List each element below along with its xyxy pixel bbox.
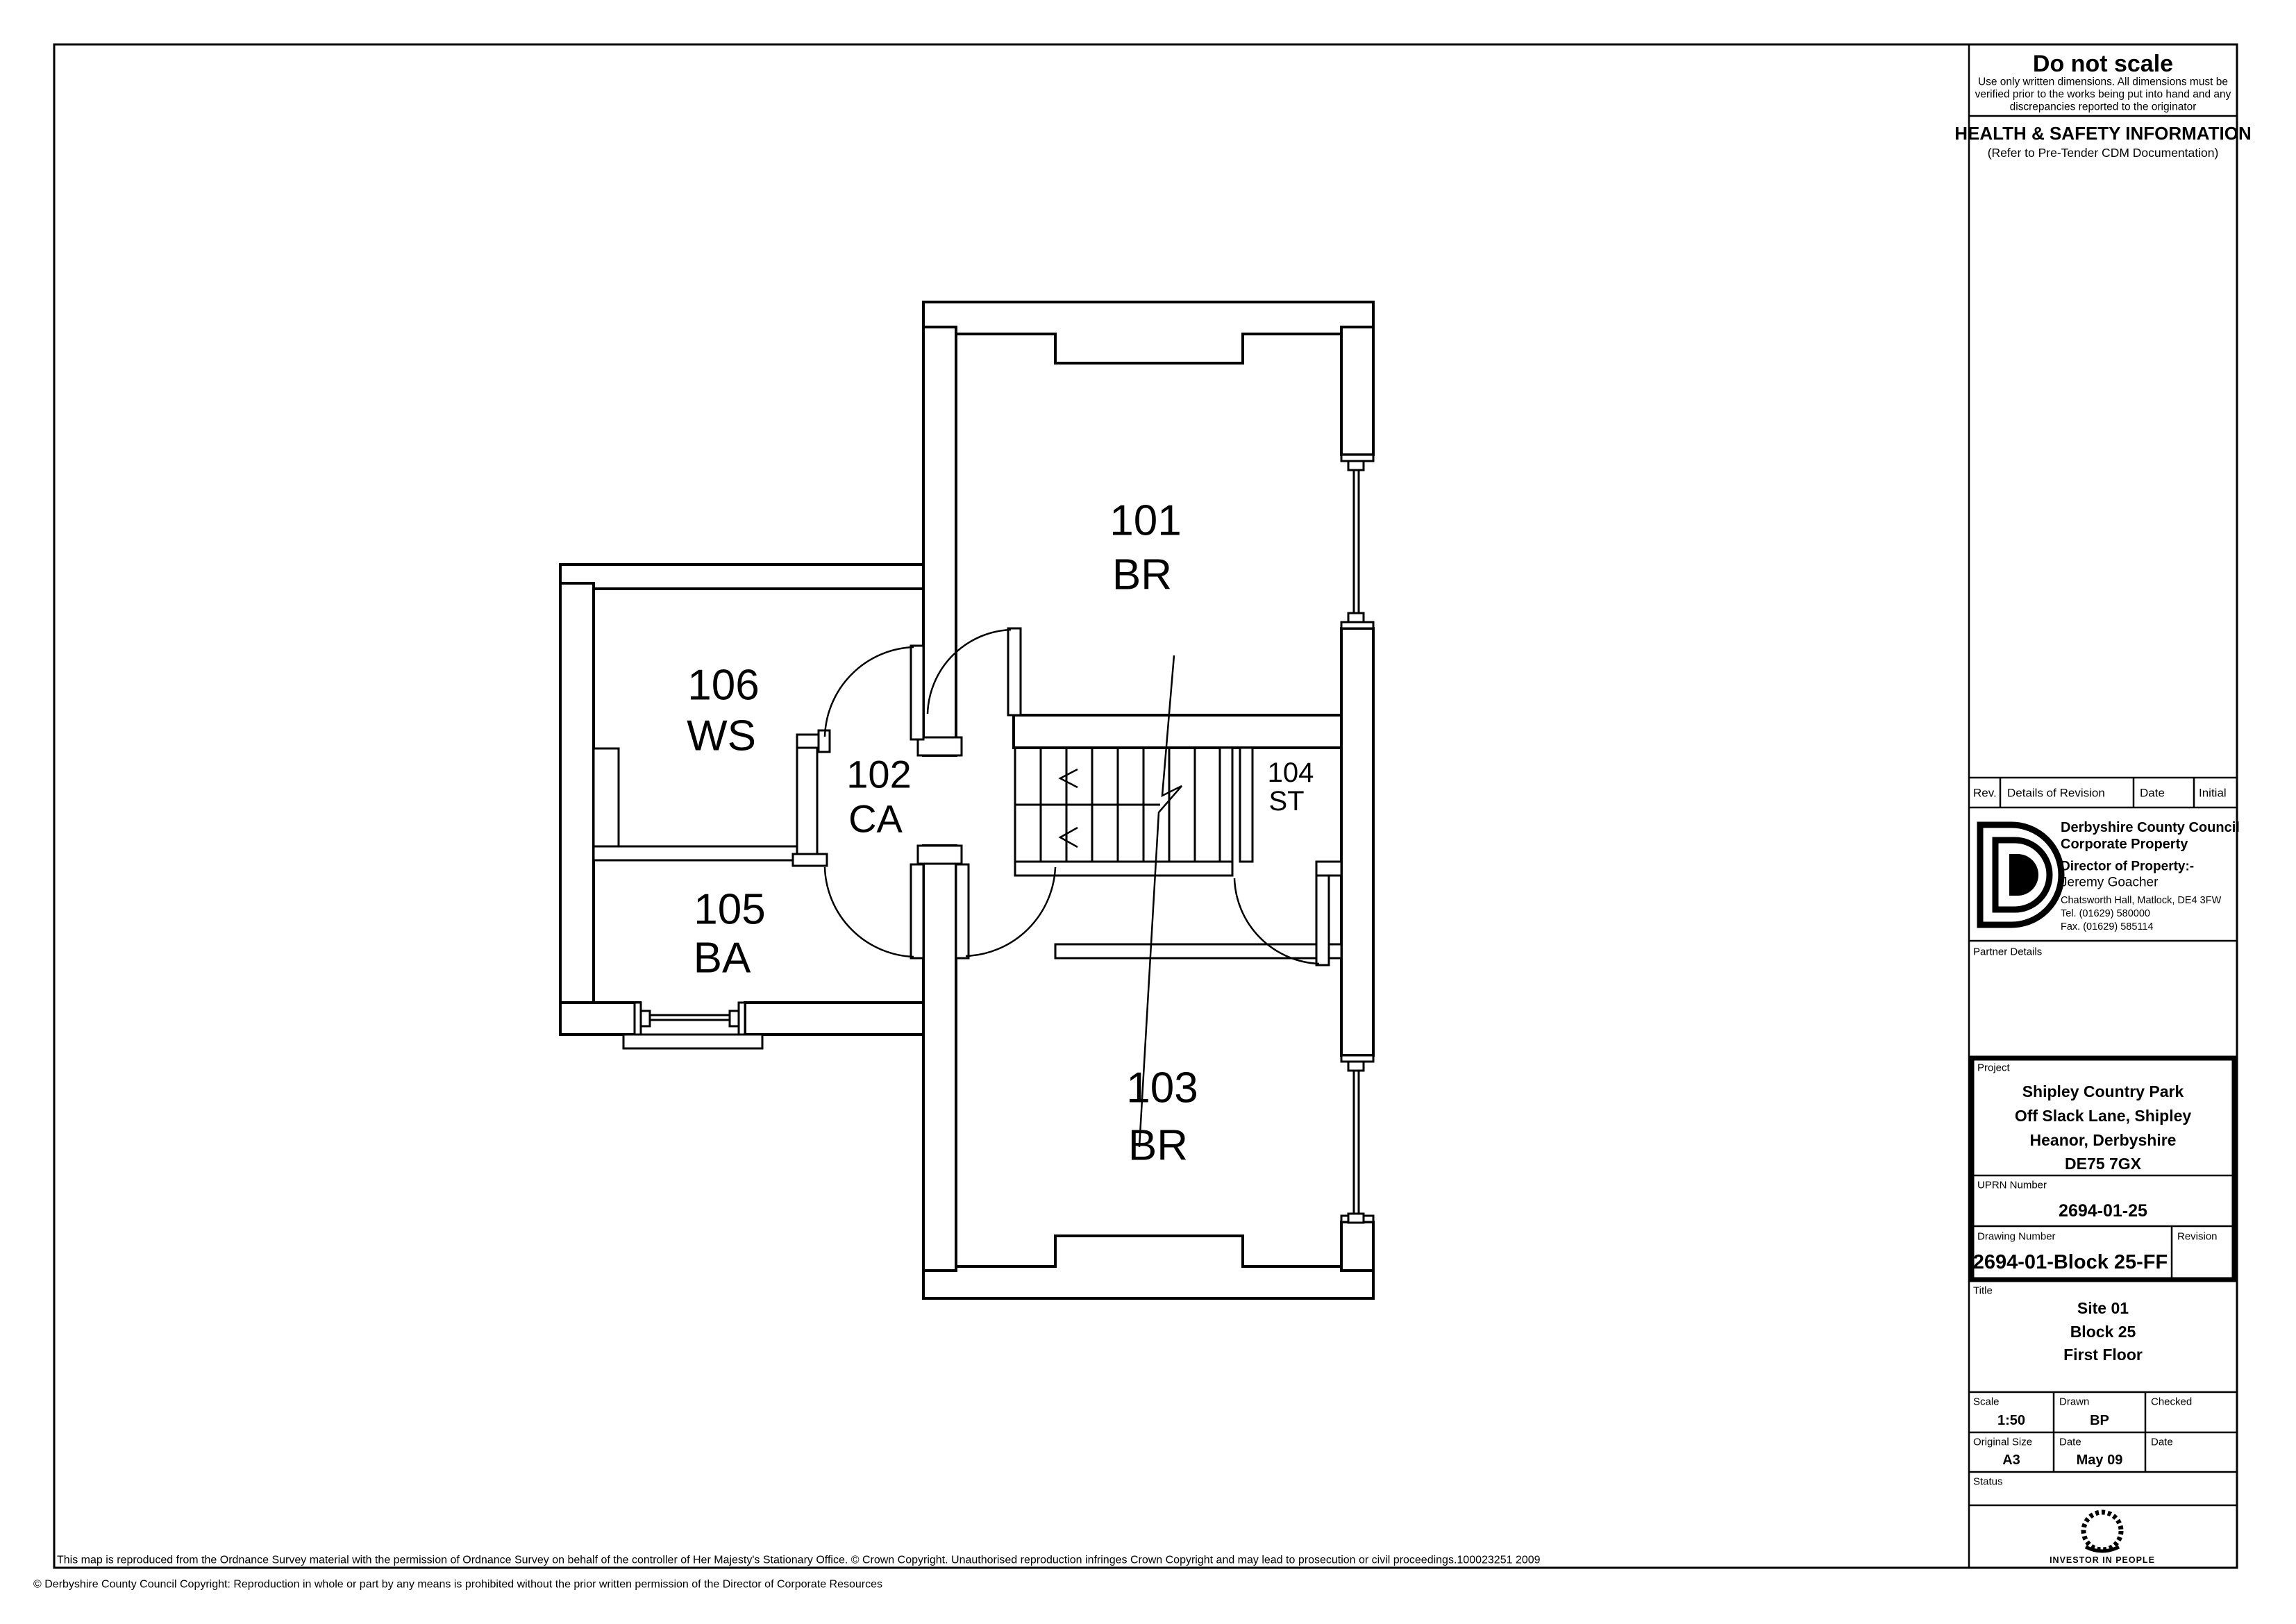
scale-value: 1:50 xyxy=(1997,1413,2025,1428)
room-104-number: 104 xyxy=(1268,757,1314,788)
partner-details-label: Partner Details xyxy=(1973,946,2042,958)
details-of-revision-header: Details of Revision xyxy=(2007,787,2105,800)
room-106-number: 106 xyxy=(687,662,759,710)
council-tel: Tel. (01629) 580000 xyxy=(2061,908,2150,919)
wall-east-upper xyxy=(1341,327,1373,455)
wall-west-upper xyxy=(923,327,956,755)
door-leaf-106 xyxy=(911,646,923,739)
wall-south-of-101 xyxy=(1014,715,1341,748)
room-101-use: BR xyxy=(1112,551,1172,599)
jamb-cap-west-lower xyxy=(918,846,962,864)
door-leaf-105 xyxy=(911,864,923,958)
scale-box: Scale 1:50 xyxy=(1973,1396,2025,1429)
title-label: Title xyxy=(1973,1285,1993,1297)
initial-header: Initial xyxy=(2199,787,2227,800)
drawing-number-label: Drawing Number xyxy=(1977,1231,2056,1243)
wall-104-west xyxy=(1240,748,1252,862)
wall-south-103 xyxy=(923,1236,1373,1298)
revision-label: Revision xyxy=(2177,1231,2218,1243)
original-size-value: A3 xyxy=(2002,1453,2020,1468)
project-line-2: Off Slack Lane, Shipley xyxy=(2015,1107,2192,1125)
window-105 xyxy=(623,1003,762,1048)
director-label: Director of Property:- xyxy=(2061,860,2194,874)
rev-header: Rev. xyxy=(1973,787,1997,800)
council-name: Derbyshire County Council xyxy=(2061,820,2240,835)
do-not-scale-line3: discrepancies reported to the originator xyxy=(2010,101,2197,113)
wall-east-lower xyxy=(1341,1222,1373,1271)
wall-wing-north xyxy=(560,564,923,589)
door-arc-103 xyxy=(966,867,1055,956)
title-box: Title Site 01 Block 25 First Floor xyxy=(1973,1285,2143,1364)
project-line-1: Shipley Country Park xyxy=(2022,1082,2184,1100)
stair-arrow-lower xyxy=(1060,828,1078,847)
dcc-d-logo xyxy=(1980,825,2061,925)
laurel-wreath-logo xyxy=(2084,1512,2121,1550)
wall-north-101 xyxy=(923,302,1373,363)
drawing-number-value: 2694-01-Block 25-FF xyxy=(1973,1251,2168,1273)
revision-table: Rev. Details of Revision Date Initial xyxy=(1969,778,2237,807)
wall-west-lower xyxy=(923,846,956,1271)
date-label: Date xyxy=(2059,1437,2081,1448)
director-name: Jeremy Goacher xyxy=(2061,876,2159,890)
wall-104-south-stub xyxy=(1316,862,1341,876)
council-dept: Corporate Property xyxy=(2061,837,2188,852)
original-size-box: Original Size A3 xyxy=(1973,1437,2032,1468)
room-102-number: 102 xyxy=(846,753,911,796)
checked-box: Checked xyxy=(2151,1396,2192,1408)
door-arc-105 xyxy=(825,867,914,957)
project-line-3: Heanor, Derbyshire xyxy=(2030,1131,2177,1149)
investor-in-people-label: INVESTOR IN PEOPLE xyxy=(2050,1555,2155,1565)
date-box: Date May 09 xyxy=(2059,1437,2122,1468)
council-address: Chatsworth Hall, Matlock, DE4 3FW xyxy=(2061,895,2222,906)
room-106-use: WS xyxy=(687,712,756,760)
drawn-label: Drawn xyxy=(2059,1396,2089,1408)
footer: This map is reproduced from the Ordnance… xyxy=(33,1555,1541,1591)
drawn-box: Drawn BP xyxy=(2059,1396,2109,1429)
checked-label: Checked xyxy=(2151,1396,2192,1408)
title-line-2: Block 25 xyxy=(2070,1323,2136,1341)
title-line-3: First Floor xyxy=(2063,1346,2143,1364)
window-105-sill xyxy=(623,1035,762,1048)
room-105-number: 105 xyxy=(694,886,765,934)
original-size-label: Original Size xyxy=(1973,1437,2032,1448)
title-block: Do not scale Use only written dimensions… xyxy=(1954,44,2252,1568)
council-block: Derbyshire County Council Corporate Prop… xyxy=(1980,820,2240,932)
checked-date-label: Date xyxy=(2151,1437,2173,1448)
drawing-sheet: 101 BR 102 CA 103 BR 104 ST 105 BA 106 W… xyxy=(0,0,2296,1624)
page-border xyxy=(54,44,2237,1568)
do-not-scale-title: Do not scale xyxy=(2033,51,2173,77)
room-103-use: BR xyxy=(1128,1122,1188,1170)
door-leaf-101 xyxy=(1008,628,1021,715)
wall-north-of-103 xyxy=(1055,944,1341,958)
window-103 xyxy=(1341,1055,1373,1223)
window-101 xyxy=(1341,455,1373,628)
wall-wing-south-left xyxy=(560,1003,640,1035)
project-label: Project xyxy=(1977,1062,2011,1074)
project-line-4: DE75 7GX xyxy=(2065,1155,2142,1173)
wall-stair-east xyxy=(1220,748,1232,862)
drawing-number-box: Drawing Number 2694-01-Block 25-FF Revis… xyxy=(1973,1226,2218,1280)
jamb-cap-stub-south xyxy=(793,854,827,866)
drawn-value: BP xyxy=(2090,1413,2109,1428)
health-safety-box: HEALTH & SAFETY INFORMATION (Refer to Pr… xyxy=(1954,123,2252,160)
wall-corridor-west xyxy=(797,748,817,864)
os-copyright-line: This map is reproduced from the Ordnance… xyxy=(57,1555,1541,1566)
council-fax: Fax. (01629) 585114 xyxy=(2061,921,2154,932)
date-value: May 09 xyxy=(2077,1453,2123,1468)
stair-arrow-upper xyxy=(1060,769,1078,787)
health-safety-title: HEALTH & SAFETY INFORMATION xyxy=(1954,123,2252,144)
room-102-use: CA xyxy=(848,797,903,841)
do-not-scale-line2: verified prior to the works being put in… xyxy=(1975,89,2231,101)
council-copyright-line: © Derbyshire County Council Copyright: R… xyxy=(33,1579,882,1591)
room-101-number: 101 xyxy=(1109,497,1181,545)
health-safety-subtitle: (Refer to Pre-Tender CDM Documentation) xyxy=(1988,146,2219,160)
door-leaf-103 xyxy=(956,864,969,958)
uprn-label: UPRN Number xyxy=(1977,1180,2047,1191)
wall-east-middle xyxy=(1341,628,1373,1055)
do-not-scale-box: Do not scale Use only written dimensions… xyxy=(1975,51,2231,113)
uprn-value: 2694-01-25 xyxy=(2059,1201,2147,1221)
do-not-scale-line1: Use only written dimensions. All dimensi… xyxy=(1978,76,2228,88)
door-leaf-104 xyxy=(1316,876,1329,965)
uprn-box: UPRN Number 2694-01-25 xyxy=(1977,1180,2147,1221)
investor-in-people: INVESTOR IN PEOPLE xyxy=(2050,1512,2155,1565)
room-105-use: BA xyxy=(694,935,751,982)
title-line-1: Site 01 xyxy=(2077,1299,2129,1317)
status-label: Status xyxy=(1973,1476,2003,1488)
wall-divider-106-105 xyxy=(594,846,817,860)
wall-wing-south-right xyxy=(745,1003,923,1035)
pier-106 xyxy=(594,748,619,846)
wall-stair-south xyxy=(1015,862,1232,876)
door-arc-106 xyxy=(825,647,914,737)
room-104-use: ST xyxy=(1268,786,1304,817)
wall-wing-west xyxy=(560,583,594,1035)
scale-label: Scale xyxy=(1973,1396,2000,1408)
room-103-number: 103 xyxy=(1126,1064,1198,1112)
project-box: Project Shipley Country Park Off Slack L… xyxy=(1977,1062,2191,1173)
floor-plan: 101 BR 102 CA 103 BR 104 ST 105 BA 106 W… xyxy=(560,302,1373,1298)
date-header: Date xyxy=(2140,787,2165,800)
